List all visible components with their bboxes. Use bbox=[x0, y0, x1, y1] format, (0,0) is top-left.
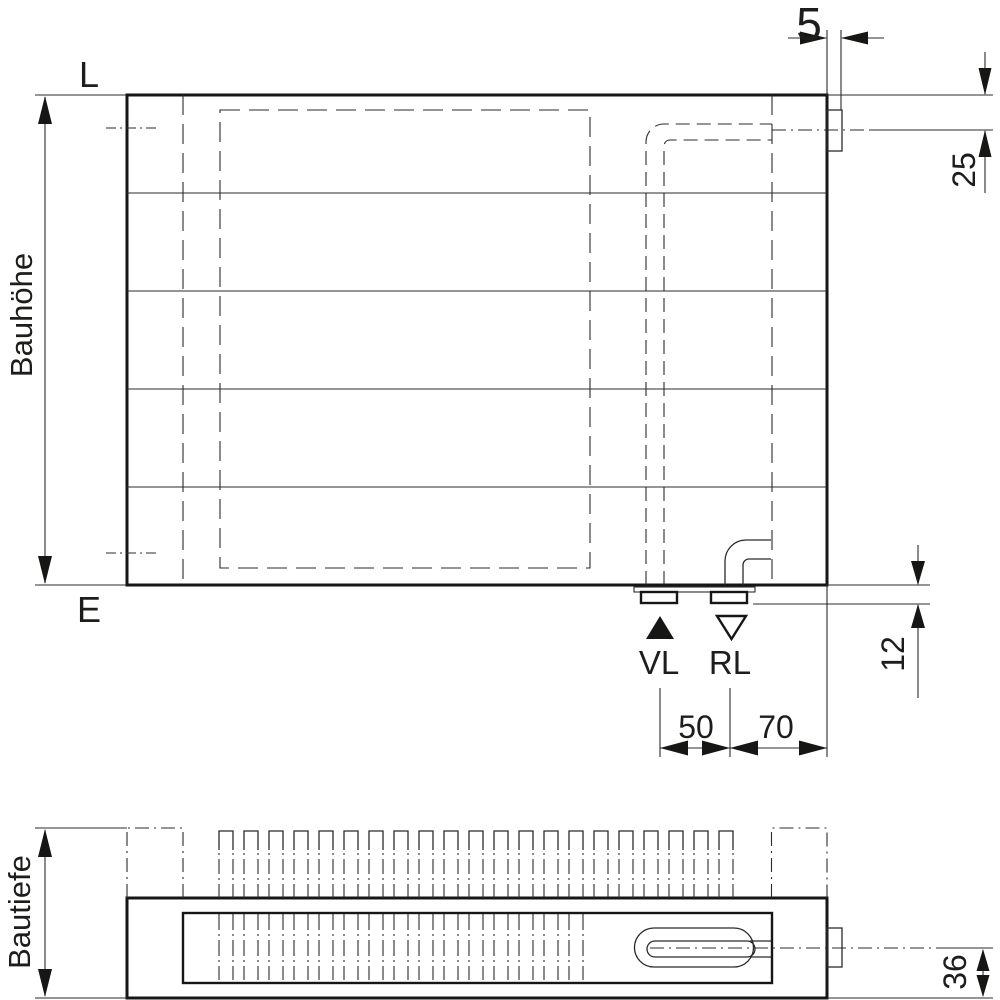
front-view: VL RL L E Bauhöhe 5 25 bbox=[4, 0, 993, 757]
dim-12: 12 bbox=[753, 545, 930, 698]
convector-plate-hidden-outline bbox=[220, 110, 590, 568]
dim-25: 25 bbox=[827, 52, 993, 193]
stub-drop-dimension-value: 12 bbox=[875, 636, 911, 672]
top-offset-dimension-value: 25 bbox=[946, 152, 982, 188]
panel-seam-lines bbox=[127, 193, 827, 487]
vent-connection-label: L bbox=[79, 54, 99, 95]
bottom-connection-block bbox=[634, 587, 755, 603]
dim-bautiefe: Bautiefe bbox=[2, 828, 127, 998]
dim-bauhoehe: Bauhöhe bbox=[4, 95, 126, 585]
dim-36: 36 bbox=[827, 949, 993, 998]
dim-5: 5 bbox=[788, 0, 884, 50]
flow-direction-icon bbox=[646, 616, 674, 639]
return-edge-spacing-value: 70 bbox=[758, 709, 794, 745]
return-stub bbox=[711, 592, 747, 603]
radiator-dimension-drawing: VL RL L E Bauhöhe 5 25 bbox=[0, 0, 1000, 1000]
height-dimension-label: Bauhöhe bbox=[4, 253, 39, 377]
flow-label: VL bbox=[639, 644, 679, 681]
return-label: RL bbox=[709, 644, 751, 681]
protrusion-dimension-value: 5 bbox=[796, 0, 822, 50]
drain-connection-label: E bbox=[77, 589, 101, 630]
tapping-centre-marks bbox=[106, 128, 160, 553]
return-pipe-elbow bbox=[725, 540, 771, 585]
radiator-front-outline bbox=[127, 95, 827, 585]
plan-view: Bautiefe 36 bbox=[2, 828, 993, 998]
return-direction-icon bbox=[717, 616, 746, 639]
convector-fins bbox=[219, 831, 733, 982]
technical-drawing-canvas: VL RL L E Bauhöhe 5 25 bbox=[0, 0, 1000, 1000]
bracket-phantom-outlines bbox=[127, 828, 827, 898]
flow-return-spacing-value: 50 bbox=[678, 709, 714, 745]
depth-dimension-label: Bautiefe bbox=[2, 855, 37, 969]
pipe-centre-offset-value: 36 bbox=[937, 954, 973, 990]
flow-stub bbox=[641, 592, 677, 603]
